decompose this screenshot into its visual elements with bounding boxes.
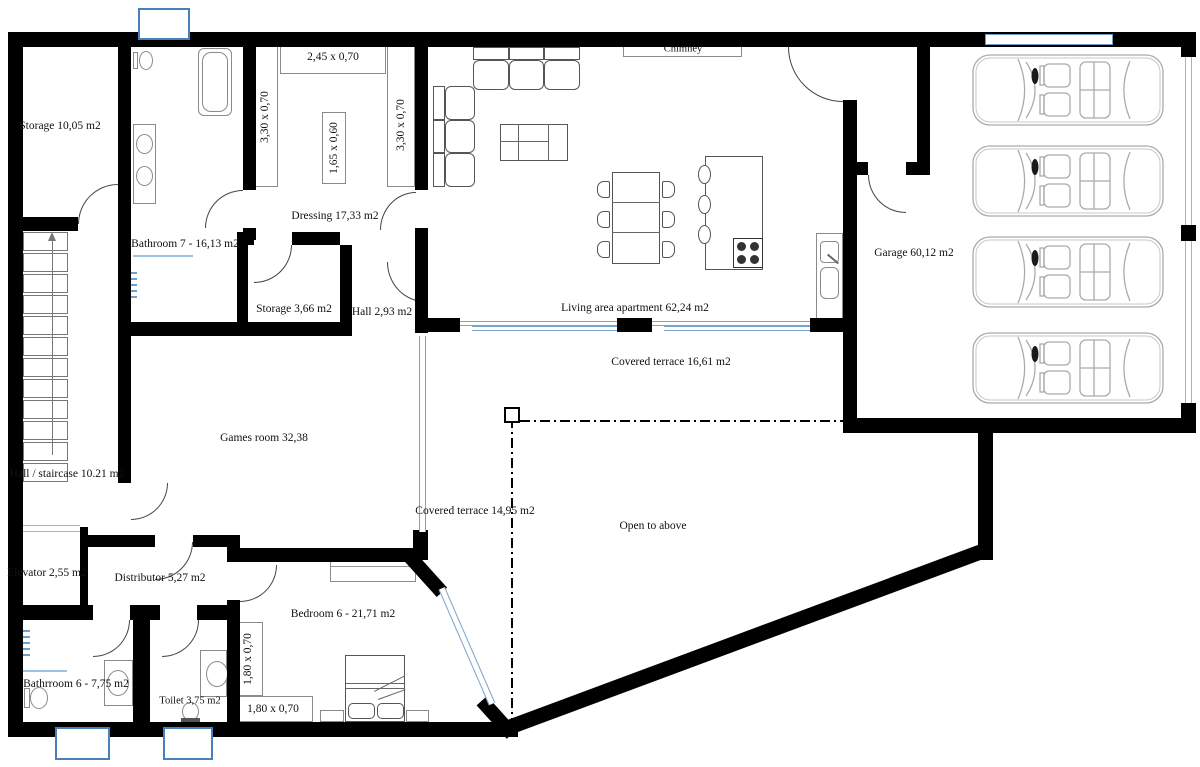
wall-garage-bottom — [843, 418, 1196, 433]
towel-rail-bath7 — [133, 255, 193, 257]
dining-chair — [597, 241, 610, 258]
bed-line — [345, 683, 405, 684]
stair-tread — [23, 232, 68, 251]
kitchen-sink-large — [820, 267, 839, 299]
stair-tread — [23, 379, 68, 398]
window-hall-terrace — [419, 336, 426, 532]
dimension-label-island: 1,65 x 0,60 — [328, 122, 340, 174]
coffee-table-line — [500, 141, 548, 142]
dimension-label-wardrobe-right: 3,30 x 0,70 — [395, 99, 407, 151]
sofa-seat — [445, 120, 475, 153]
coffee-table-line — [548, 124, 549, 161]
wall-dist-right-b — [227, 600, 240, 612]
stair-tread — [23, 400, 68, 419]
wall-staircase — [118, 32, 131, 483]
door-arc-bedroom — [240, 565, 277, 602]
cooktop-burner — [737, 255, 746, 264]
wall-open-right — [978, 420, 993, 560]
coffee-table — [500, 124, 568, 161]
wall-bath7-east — [243, 32, 256, 190]
room-label-elevator: Elevator 2,55 m2 — [7, 567, 87, 579]
dining-table — [612, 172, 660, 264]
room-label-hall-staircase: Hall / staircase 10.21 m2 — [10, 468, 125, 480]
wall-south-row-c — [197, 605, 227, 620]
room-label-toilet: Toilet 3,75 m2 — [159, 696, 220, 707]
dimension-label-bedroom-wardrobe-left: 1,80 x 0,70 — [242, 633, 254, 685]
wall-slide-post-left — [415, 318, 460, 332]
stair-tread — [23, 295, 68, 314]
stair-tread — [23, 358, 68, 377]
dining-chair — [597, 181, 610, 198]
dining-chair — [662, 211, 675, 228]
door-arc-hall-games — [131, 483, 168, 520]
bedroom-dresser-line — [330, 566, 416, 567]
sink-bath7-2 — [136, 166, 153, 186]
wall-garage-right-bottom — [1181, 403, 1196, 433]
wall-dist-top-a — [80, 535, 155, 547]
bed-pillow — [377, 703, 404, 719]
door-arc-bathroom6 — [93, 620, 130, 657]
toilet-bath7 — [133, 52, 138, 69]
sofa-seat — [473, 60, 509, 90]
room-label-living: Living area apartment 62,24 m2 — [561, 302, 709, 314]
wall-slide-post-right — [810, 318, 857, 332]
room-label-bathroom7: Bathroom 7 - 16,13 m2 — [131, 238, 239, 250]
toilet-bath7-bowl — [139, 51, 153, 70]
car-top-view — [972, 330, 1164, 406]
lightwell-bottom-mid — [163, 727, 213, 760]
sofa-seat — [445, 86, 475, 120]
stair-tread — [23, 274, 68, 293]
staircase — [23, 232, 68, 484]
bathtub-inner — [202, 52, 228, 112]
wall-bath6-toilet-divider — [133, 620, 150, 722]
dining-chair — [662, 181, 675, 198]
wall-garage-right-top — [1181, 32, 1196, 57]
bar-stool — [698, 225, 711, 244]
bed-pillow — [348, 703, 375, 719]
floor-plan: Storage 10,05 m2 Bathroom 7 - 16,13 m2 D… — [0, 0, 1200, 767]
wall-bedroom-top — [227, 548, 418, 562]
wall-dist-right-a — [227, 535, 240, 562]
cooktop-burner — [750, 242, 759, 251]
elevator-door — [23, 525, 80, 532]
coffee-table-line — [518, 124, 519, 161]
sofa-back — [509, 47, 544, 60]
sofa-back — [433, 153, 445, 187]
bed-line — [345, 688, 405, 689]
wall-storage2-top-b — [292, 232, 340, 245]
room-label-garage: Garage 60,12 m2 — [874, 247, 954, 259]
garage-door-upper — [1185, 57, 1192, 225]
radiator-bath7 — [130, 272, 137, 299]
room-label-storage-top: Storage 10,05 m2 — [19, 120, 100, 132]
label-open-to-above: Open to above — [619, 520, 686, 532]
car-top-view — [972, 234, 1164, 310]
radiator-bath6 — [23, 630, 30, 657]
sofa-back — [473, 47, 509, 60]
window-bedroom-diagonal — [439, 587, 496, 705]
dashdot-line-vertical — [511, 418, 513, 722]
cooktop-burner — [737, 242, 746, 251]
wall-dressing-east-a — [415, 32, 428, 190]
door-arc-dressing — [380, 192, 416, 230]
cooktop-burner — [750, 255, 759, 264]
towel-rail-bath6 — [23, 670, 67, 672]
room-label-dressing: Dressing 17,33 m2 — [291, 210, 378, 222]
dining-chair — [662, 241, 675, 258]
wall-bedroom-west — [227, 612, 240, 722]
door-arc-toilet — [162, 620, 199, 657]
sink-bath7-1 — [136, 134, 153, 154]
wall-corridor-stub-a — [857, 162, 868, 175]
sofa-back — [433, 120, 445, 153]
stair-arrow-icon — [48, 232, 56, 241]
room-label-storage-small: Storage 3,66 m2 — [256, 303, 332, 315]
dimension-label-wardrobe-top: 2,45 x 0,70 — [307, 51, 359, 63]
nightstand — [406, 710, 429, 722]
stair-tread — [23, 442, 68, 461]
wall-left-outer — [8, 32, 23, 737]
stair-direction-line — [52, 241, 53, 455]
bar-stool — [698, 165, 711, 184]
lightwell-top — [138, 8, 190, 40]
door-arc-living-entry — [788, 47, 843, 102]
dining-table-line — [612, 232, 660, 233]
lightwell-bottom-left — [55, 727, 110, 760]
sofa-back — [433, 86, 445, 120]
toilet-bath6-bowl — [30, 687, 48, 709]
wall-living-right — [843, 100, 857, 418]
wall-south-row-a — [23, 605, 93, 620]
window-garage-top — [985, 34, 1113, 45]
stair-tread — [23, 253, 68, 272]
stair-tread — [23, 316, 68, 335]
stair-tread — [23, 337, 68, 356]
room-label-hall-small: Hall 2,93 m2 — [352, 306, 412, 318]
sink-toilet — [206, 661, 228, 687]
room-label-bedroom6: Bedroom 6 - 21,71 m2 — [291, 608, 395, 620]
sofa-seat — [509, 60, 544, 90]
room-label-games: Games room 32,38 — [220, 432, 308, 444]
nightstand — [320, 710, 344, 722]
wall-storage-bottom — [8, 217, 78, 231]
room-label-bathroom6: Bathrroom 6 - 7,75 m2 — [23, 678, 129, 690]
dining-table-line — [612, 202, 660, 203]
sofa-seat — [544, 60, 580, 90]
sofa-back — [544, 47, 580, 60]
wall-south-row-b — [130, 605, 160, 620]
label-chimney: Chimney — [664, 44, 703, 55]
wall-storage2-east — [340, 245, 352, 333]
window-sliding-left-2 — [472, 326, 617, 331]
bedroom-dresser — [330, 560, 416, 582]
car-top-view — [972, 52, 1164, 128]
wall-diagonal — [503, 542, 990, 735]
door-arc-storage — [78, 184, 118, 224]
wall-slide-post-mid — [617, 318, 652, 332]
wall-storage2-top-a — [248, 232, 254, 245]
room-label-terrace-lower: Covered terrace 14,95 m2 — [415, 505, 534, 517]
stair-tread — [23, 421, 68, 440]
sofa-seat — [445, 153, 475, 187]
door-arc-storage2 — [254, 245, 292, 283]
door-arc-bathroom7 — [205, 190, 243, 228]
room-label-terrace-upper: Covered terrace 16,61 m2 — [611, 356, 730, 368]
car-top-view — [972, 143, 1164, 219]
garage-door-lower — [1185, 241, 1192, 403]
bar-stool — [698, 195, 711, 214]
dining-chair — [597, 211, 610, 228]
dimension-label-wardrobe-left: 3,30 x 0,70 — [259, 91, 271, 143]
room-label-distributor: Distributor 5,27 m2 — [114, 572, 205, 584]
window-sliding-right-2 — [664, 326, 810, 331]
wall-garage-right-mid — [1181, 225, 1196, 241]
dimension-label-bedroom-wardrobe-bottom: 1,80 x 0,70 — [247, 703, 299, 715]
wall-garage-left — [917, 47, 930, 162]
wall-corridor-stub-b — [906, 162, 930, 175]
column — [504, 407, 520, 423]
door-arc-garage-corridor — [868, 175, 906, 213]
